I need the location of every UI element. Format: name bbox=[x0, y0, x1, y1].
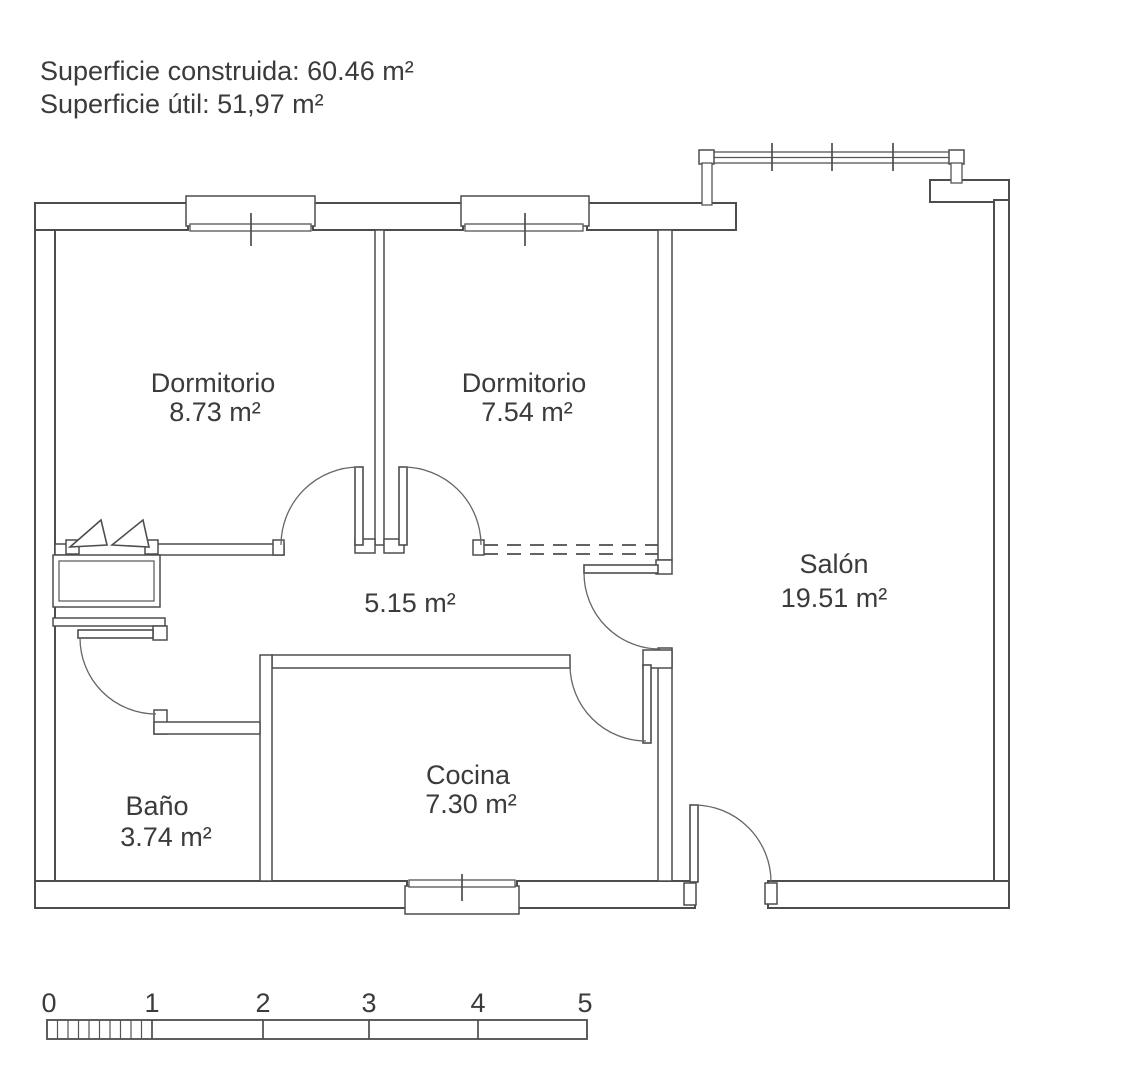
wall-kitchen-left bbox=[260, 655, 272, 881]
balcony-glazing-right bbox=[951, 163, 962, 183]
bedroom2-door bbox=[399, 467, 481, 545]
salon-door bbox=[584, 565, 660, 649]
jamb-block bbox=[765, 883, 777, 904]
scale-label-1: 1 bbox=[144, 988, 159, 1018]
balcony-glazing-left bbox=[702, 163, 712, 205]
bathroom-name: Baño bbox=[125, 791, 188, 821]
wall-bathroom-right-top bbox=[154, 722, 260, 734]
salon-name: Salón bbox=[799, 549, 868, 579]
bedroom2-area: 7.54 m² bbox=[481, 397, 573, 427]
bathroom-hinge-block bbox=[153, 626, 167, 640]
scale-bar: 0 1 2 3 4 5 bbox=[41, 988, 592, 1039]
bedroom1-door bbox=[281, 467, 363, 545]
room-labels: Dormitorio 8.73 m² Dormitorio 7.54 m² Sa… bbox=[120, 368, 887, 852]
surface-header: Superficie construida: 60.46 m² Superfic… bbox=[40, 56, 414, 119]
scale-bar-labels: 0 1 2 3 4 5 bbox=[41, 988, 592, 1018]
jamb-block bbox=[684, 883, 696, 905]
salon-area: 19.51 m² bbox=[781, 583, 888, 613]
closet bbox=[53, 520, 160, 607]
scale-label-3: 3 bbox=[361, 988, 376, 1018]
bathroom-door bbox=[78, 630, 156, 714]
bedroom1-window bbox=[186, 196, 315, 246]
bifold-door-leaf bbox=[112, 520, 149, 547]
scale-label-5: 5 bbox=[577, 988, 592, 1018]
floor-plan-drawing: Superficie construida: 60.46 m² Superfic… bbox=[0, 0, 1135, 1080]
entry-door bbox=[690, 805, 771, 882]
bedroom2-window bbox=[461, 196, 589, 246]
kitchen-area: 7.30 m² bbox=[425, 789, 517, 819]
kitchen-door bbox=[570, 665, 651, 743]
wall-bottom-a bbox=[35, 881, 407, 908]
scale-bar-body bbox=[47, 1020, 587, 1039]
wall-left bbox=[35, 203, 55, 908]
wall-kitchen-top bbox=[272, 655, 570, 668]
bedroom2-name: Dormitorio bbox=[462, 368, 587, 398]
balcony-post-right bbox=[949, 150, 964, 164]
dashed-partition bbox=[484, 545, 658, 554]
wall-right bbox=[994, 200, 1009, 908]
wall-top-a bbox=[35, 203, 188, 230]
scale-label-4: 4 bbox=[470, 988, 485, 1018]
balcony-post-left bbox=[699, 150, 714, 164]
bedroom1-name: Dormitorio bbox=[151, 368, 276, 398]
scale-label-2: 2 bbox=[255, 988, 270, 1018]
jamb-block bbox=[473, 540, 484, 555]
wall-top-b bbox=[313, 203, 463, 230]
wall-bottom-b bbox=[517, 881, 695, 908]
kitchen-window bbox=[405, 874, 519, 914]
wall-top-right-chunk bbox=[930, 180, 1009, 202]
balcony-glazing bbox=[699, 143, 964, 205]
bifold-door-leaf bbox=[70, 520, 107, 547]
wall-salon-divider-upper bbox=[658, 230, 672, 560]
floor-plan-page: Superficie construida: 60.46 m² Superfic… bbox=[0, 0, 1135, 1080]
wall-top-c bbox=[587, 203, 736, 230]
scale-label-0: 0 bbox=[41, 988, 56, 1018]
wall-salon-divider-lower bbox=[658, 648, 672, 881]
bedroom1-area: 8.73 m² bbox=[169, 397, 261, 427]
kitchen-name: Cocina bbox=[426, 760, 511, 790]
bathroom-area: 3.74 m² bbox=[120, 822, 212, 852]
built-surface-text: Superficie construida: 60.46 m² bbox=[40, 56, 414, 86]
hallway-area: 5.15 m² bbox=[364, 588, 456, 618]
jamb-block bbox=[273, 540, 284, 555]
wall-hall-top bbox=[155, 544, 284, 555]
wall-bottom-c bbox=[768, 881, 1009, 908]
usable-surface-text: Superficie útil: 51,97 m² bbox=[40, 89, 324, 119]
wall-bathroom-top bbox=[53, 618, 165, 626]
wall-bedroom-divider bbox=[375, 230, 384, 545]
